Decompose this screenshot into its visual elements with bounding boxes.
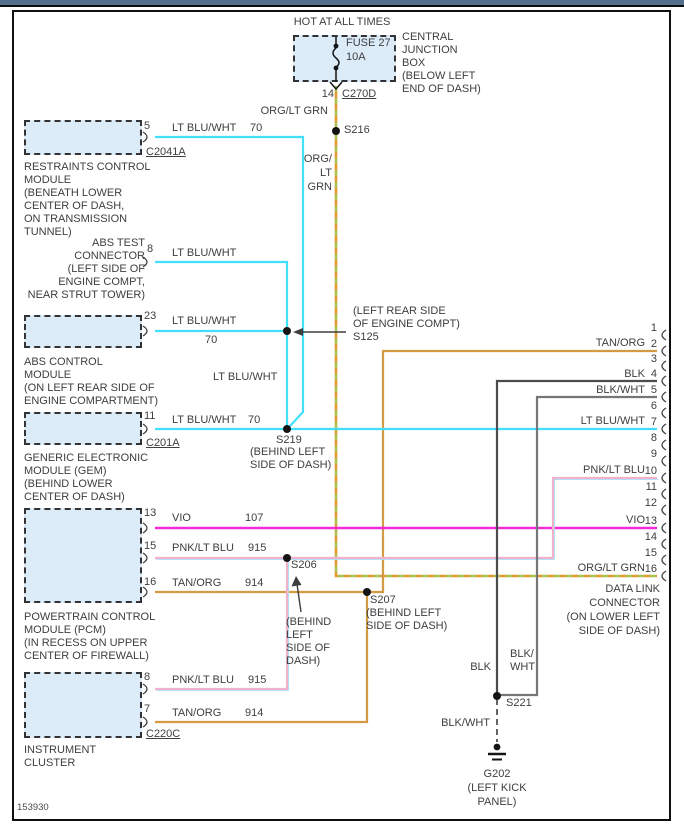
desc-line: (BEHIND LOWER — [24, 478, 148, 491]
splice-dot-s219 — [283, 425, 291, 433]
desc-line: CONNECTOR — [8, 250, 145, 263]
dlc-pin16-wire-label: ORG/LT GRN — [545, 562, 645, 575]
desc-line: MODULE (GEM) — [24, 465, 148, 478]
loc-line: SIDE OF — [286, 642, 331, 655]
desc-line: RESTRAINTS CONTROL — [24, 161, 151, 174]
splice-dot-s216 — [332, 127, 340, 135]
loc-line: SIDE OF DASH) — [250, 459, 331, 472]
abs-test-wire-label: LT BLU/WHT — [172, 247, 236, 260]
splice-s219-location: (BEHIND LEFT SIDE OF DASH) — [250, 446, 331, 472]
wire-stack-line: ORG/ — [280, 152, 332, 166]
wire-stack-line: BLK/ — [510, 648, 535, 661]
desc-line: (LEFT SIDE OF — [8, 263, 145, 276]
loc-line: PANEL) — [447, 795, 547, 809]
cjb-line: JUNCTION — [402, 44, 481, 57]
org-lt-grn-vertical-label: ORG/ LT GRN — [280, 152, 332, 194]
dlc-pin2-wire-label: TAN/ORG — [545, 337, 645, 350]
loc-line: DASH) — [286, 655, 331, 668]
dlc-pin-number-1: 1 — [627, 322, 657, 335]
cjb-line: BOX — [402, 57, 481, 70]
splice-s206-location: (BEHIND LEFT SIDE OF DASH) — [286, 616, 331, 668]
connector-c201a: C201A — [146, 437, 180, 450]
connector-c220c: C220C — [146, 728, 180, 741]
splice-s221-label: S221 — [506, 697, 532, 710]
dlc-pin-number-14: 14 — [627, 531, 657, 544]
pcm-pin15-circuit: 915 — [248, 542, 266, 555]
desc-line: CENTER OF DASH) — [24, 491, 148, 504]
pcm-pin13-wire-label: VIO — [172, 512, 191, 525]
desc-line: INSTRUMENT — [24, 744, 96, 757]
abs-control-module-description: ABS CONTROL MODULE (ON LEFT REAR SIDE OF… — [24, 356, 158, 408]
pcm-module-description: POWERTRAIN CONTROL MODULE (PCM) (IN RECE… — [24, 611, 155, 663]
splice-dot-s221 — [493, 692, 501, 700]
dlc-pin-number-3: 3 — [627, 353, 657, 366]
splice-s125-callout: (LEFT REAR SIDE OF ENGINE COMPT) S125 — [353, 305, 460, 344]
mid-lt-blu-wht-label: LT BLU/WHT — [213, 371, 277, 384]
org-lt-grn-wire-label: ORG/LT GRN — [230, 105, 328, 118]
pcm-pin16-circuit: 914 — [245, 577, 263, 590]
cjb-pin-number: 14 — [312, 88, 334, 101]
desc-line: (ON LEFT REAR SIDE OF — [24, 382, 158, 395]
desc-line: CENTER OF DASH, — [24, 200, 151, 213]
wire-tan-org — [155, 351, 657, 722]
wire-stack-line: LT — [280, 166, 332, 180]
gem-wire-label: LT BLU/WHT — [172, 414, 236, 427]
desc-line: (BENEATH LOWER — [24, 187, 151, 200]
desc-line: GENERIC ELECTRONIC — [24, 452, 148, 465]
desc-line: SIDE OF DASH) — [530, 624, 660, 638]
diagram-id: 153930 — [17, 801, 49, 814]
wire-stack-line: WHT — [510, 661, 535, 674]
cluster-pin8-number: 8 — [144, 671, 150, 684]
cluster-pin8-circuit: 915 — [248, 674, 266, 687]
splice-s207-label: S207 — [370, 594, 396, 607]
central-junction-box-label: CENTRAL JUNCTION BOX (BELOW LEFT END OF … — [402, 31, 481, 96]
cjb-line: (BELOW LEFT — [402, 70, 481, 83]
blk-wht-ground-lead-label: BLK/WHT — [420, 717, 490, 730]
cluster-pin8-wire-label: PNK/LT BLU — [172, 674, 234, 687]
dlc-pin10-wire-label: PNK/LT BLU — [545, 464, 645, 477]
pcm-pin13-circuit: 107 — [245, 512, 263, 525]
dlc-pin7-wire-label: LT BLU/WHT — [545, 415, 645, 428]
loc-line: LEFT — [286, 629, 331, 642]
abs-ctrl-circuit-number: 70 — [205, 334, 217, 347]
cjb-line: END OF DASH) — [402, 83, 481, 96]
pcm-pin13-number: 13 — [144, 507, 156, 520]
abs-ctrl-pin-number: 23 — [144, 310, 156, 323]
splice-dot-s206 — [283, 554, 291, 562]
blk-wire-label: BLK — [455, 661, 491, 674]
abs-test-connector-description: ABS TEST CONNECTOR (LEFT SIDE OF ENGINE … — [8, 237, 145, 302]
dlc-pin4-wire-label: BLK — [545, 368, 645, 381]
loc-line: SIDE OF DASH) — [366, 620, 447, 633]
fuse-rating-label: 10A — [346, 51, 366, 64]
dlc-pin5-wire-label: BLK/WHT — [545, 384, 645, 397]
connector-c270d: C270D — [342, 88, 376, 101]
dlc-pin-number-6: 6 — [627, 400, 657, 413]
pcm-pin15-number: 15 — [144, 540, 156, 553]
ground-symbol-g202 — [488, 744, 506, 760]
wiring-diagram-page: HOT AT ALL TIMES FUSE 27 10A CENTRAL JUN… — [0, 0, 684, 838]
abs-test-pin-number: 8 — [147, 243, 153, 256]
dlc-pin-number-12: 12 — [627, 497, 657, 510]
splice-s216-label: S216 — [344, 124, 370, 137]
blk-wht-wire-label-stack: BLK/ WHT — [510, 648, 535, 674]
loc-line: (BEHIND — [286, 616, 331, 629]
instrument-cluster-description: INSTRUMENT CLUSTER — [24, 744, 96, 770]
cluster-pin7-wire-label: TAN/ORG — [172, 707, 221, 720]
desc-line: CLUSTER — [24, 757, 96, 770]
dlc-pin-number-9: 9 — [627, 448, 657, 461]
restraints-circuit-number: 70 — [250, 122, 262, 135]
dlc-description: DATA LINK CONNECTOR (ON LOWER LEFT SIDE … — [530, 582, 660, 638]
splice-s125-label: S125 — [353, 331, 460, 344]
s206-callout-arrow — [292, 576, 302, 612]
cluster-pin7-number: 7 — [144, 703, 150, 716]
desc-line: MODULE — [24, 174, 151, 187]
desc-line: CONNECTOR — [530, 596, 660, 610]
desc-line: NEAR STRUT TOWER) — [8, 289, 145, 302]
desc-line: CENTER OF FIREWALL) — [24, 650, 155, 663]
desc-line: ENGINE COMPARTMENT) — [24, 395, 158, 408]
dlc-pin-number-15: 15 — [627, 547, 657, 560]
cluster-pin7-circuit: 914 — [245, 707, 263, 720]
desc-line: ABS CONTROL — [24, 356, 158, 369]
dlc-pin-number-11: 11 — [627, 481, 657, 494]
pcm-pin16-wire-label: TAN/ORG — [172, 577, 221, 590]
loc-line: (BEHIND LEFT — [366, 607, 447, 620]
restraints-wire-label: LT BLU/WHT — [172, 122, 236, 135]
fuse-name-label: FUSE 27 — [346, 37, 391, 50]
restraints-pin-number: 5 — [144, 120, 150, 133]
pcm-pin15-wire-label: PNK/LT BLU — [172, 542, 234, 555]
desc-line: POWERTRAIN CONTROL — [24, 611, 155, 624]
loc-line: (BEHIND LEFT — [250, 446, 331, 459]
abs-ctrl-wire-label: LT BLU/WHT — [172, 315, 236, 328]
dlc-pin-number-8: 8 — [627, 432, 657, 445]
dlc-pin-connector-arcs — [662, 330, 666, 581]
gem-pin-number: 11 — [144, 410, 155, 423]
loc-line: (LEFT REAR SIDE — [353, 305, 460, 318]
desc-line: DATA LINK — [530, 582, 660, 596]
s125-callout-arrow — [293, 328, 346, 336]
dlc-pin13-wire-label: VIO — [545, 514, 645, 527]
splice-s207-location: (BEHIND LEFT SIDE OF DASH) — [366, 607, 447, 633]
loc-line: (LEFT KICK — [447, 781, 547, 795]
connector-c2041a: C2041A — [146, 146, 186, 159]
restraints-module-description: RESTRAINTS CONTROL MODULE (BENEATH LOWER… — [24, 161, 151, 239]
cjb-line: CENTRAL — [402, 31, 481, 44]
hot-at-all-times-label: HOT AT ALL TIMES — [282, 16, 402, 29]
gem-module-description: GENERIC ELECTRONIC MODULE (GEM) (BEHIND … — [24, 452, 148, 504]
desc-line: (ON LOWER LEFT — [530, 610, 660, 624]
wire-stack-line: GRN — [280, 180, 332, 194]
ground-g202-label: G202 — [447, 767, 547, 781]
desc-line: ABS TEST — [8, 237, 145, 250]
desc-line: MODULE (PCM) — [24, 624, 155, 637]
desc-line: ON TRANSMISSION — [24, 213, 151, 226]
loc-line: OF ENGINE COMPT) — [353, 318, 460, 331]
gem-circuit-number: 70 — [248, 414, 260, 427]
splice-s206-label: S206 — [291, 559, 317, 572]
desc-line: ENGINE COMPT, — [8, 276, 145, 289]
desc-line: (IN RECESS ON UPPER — [24, 637, 155, 650]
fuse-symbol — [330, 37, 342, 89]
desc-line: MODULE — [24, 369, 158, 382]
pcm-pin16-number: 16 — [144, 576, 156, 589]
splice-dot-s125 — [283, 327, 291, 335]
ground-g202-label-block: G202 (LEFT KICK PANEL) — [447, 767, 547, 809]
